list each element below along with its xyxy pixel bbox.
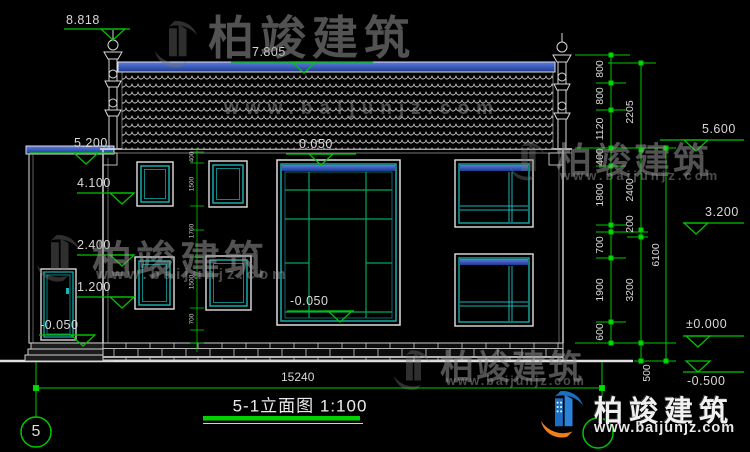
dim-400: 400 (594, 148, 606, 166)
elevation-label-1200: 1.200 (77, 280, 111, 294)
drawing-title: 5-1立面图 1:100 (233, 392, 368, 417)
elevation-linework (0, 0, 750, 452)
right-windows (455, 160, 533, 326)
elevation-label-2400: 2.400 (77, 238, 111, 252)
title-underline (203, 416, 363, 424)
dim-600: 600 (594, 323, 606, 341)
dim-700: 700 (594, 236, 606, 254)
dim-inner-2: 1500 (189, 177, 196, 191)
right-finial (553, 33, 571, 148)
dim-1900: 1900 (594, 278, 606, 301)
left-finial (104, 30, 122, 148)
elevation-label-neg0050-center: -0.050 (290, 294, 328, 308)
elevation-label-3200: 3.200 (705, 205, 739, 219)
grid-bubbles (21, 417, 613, 448)
elevation-label-5200: 5.200 (74, 136, 108, 150)
elevation-label-neg0050-left: -0.050 (40, 318, 78, 332)
dim-inner-4: 1500 (189, 275, 196, 289)
elevation-label-8818: 8.818 (66, 13, 100, 27)
elevation-label-7805: 7.805 (252, 45, 286, 59)
elevation-label-5600: 5.600 (702, 122, 736, 136)
dim-1120: 1120 (594, 118, 606, 141)
cad-elevation-drawing: 8.818 7.805 5.200 4.100 2.400 1.200 -0.0… (0, 0, 750, 452)
dim-6100: 6100 (650, 243, 662, 266)
dim-2400: 2400 (624, 178, 636, 201)
dim-800b: 800 (594, 87, 606, 105)
elevation-label-neg0500: -0.500 (687, 374, 725, 388)
dim-500: 500 (641, 364, 653, 382)
dim-1800: 1800 (594, 183, 606, 206)
dim-800a: 800 (594, 60, 606, 78)
elevation-label-0000: ±0.000 (686, 317, 727, 331)
dim-inner-3: 1700 (189, 224, 196, 238)
dim-15240: 15240 (281, 370, 314, 384)
roof (118, 62, 555, 149)
dim-200: 200 (624, 215, 636, 233)
dim-inner-5: 700 (189, 314, 196, 325)
dim-3200: 3200 (624, 278, 636, 301)
grid-bubble-5-label: 5 (32, 423, 41, 441)
dim-2205: 2205 (624, 100, 636, 123)
elevation-label-0050-top: 0.050 (299, 137, 333, 151)
elevation-label-4100: 4.100 (77, 176, 111, 190)
chain-ticks (609, 53, 668, 363)
dim-inner-1: 400 (189, 152, 196, 163)
